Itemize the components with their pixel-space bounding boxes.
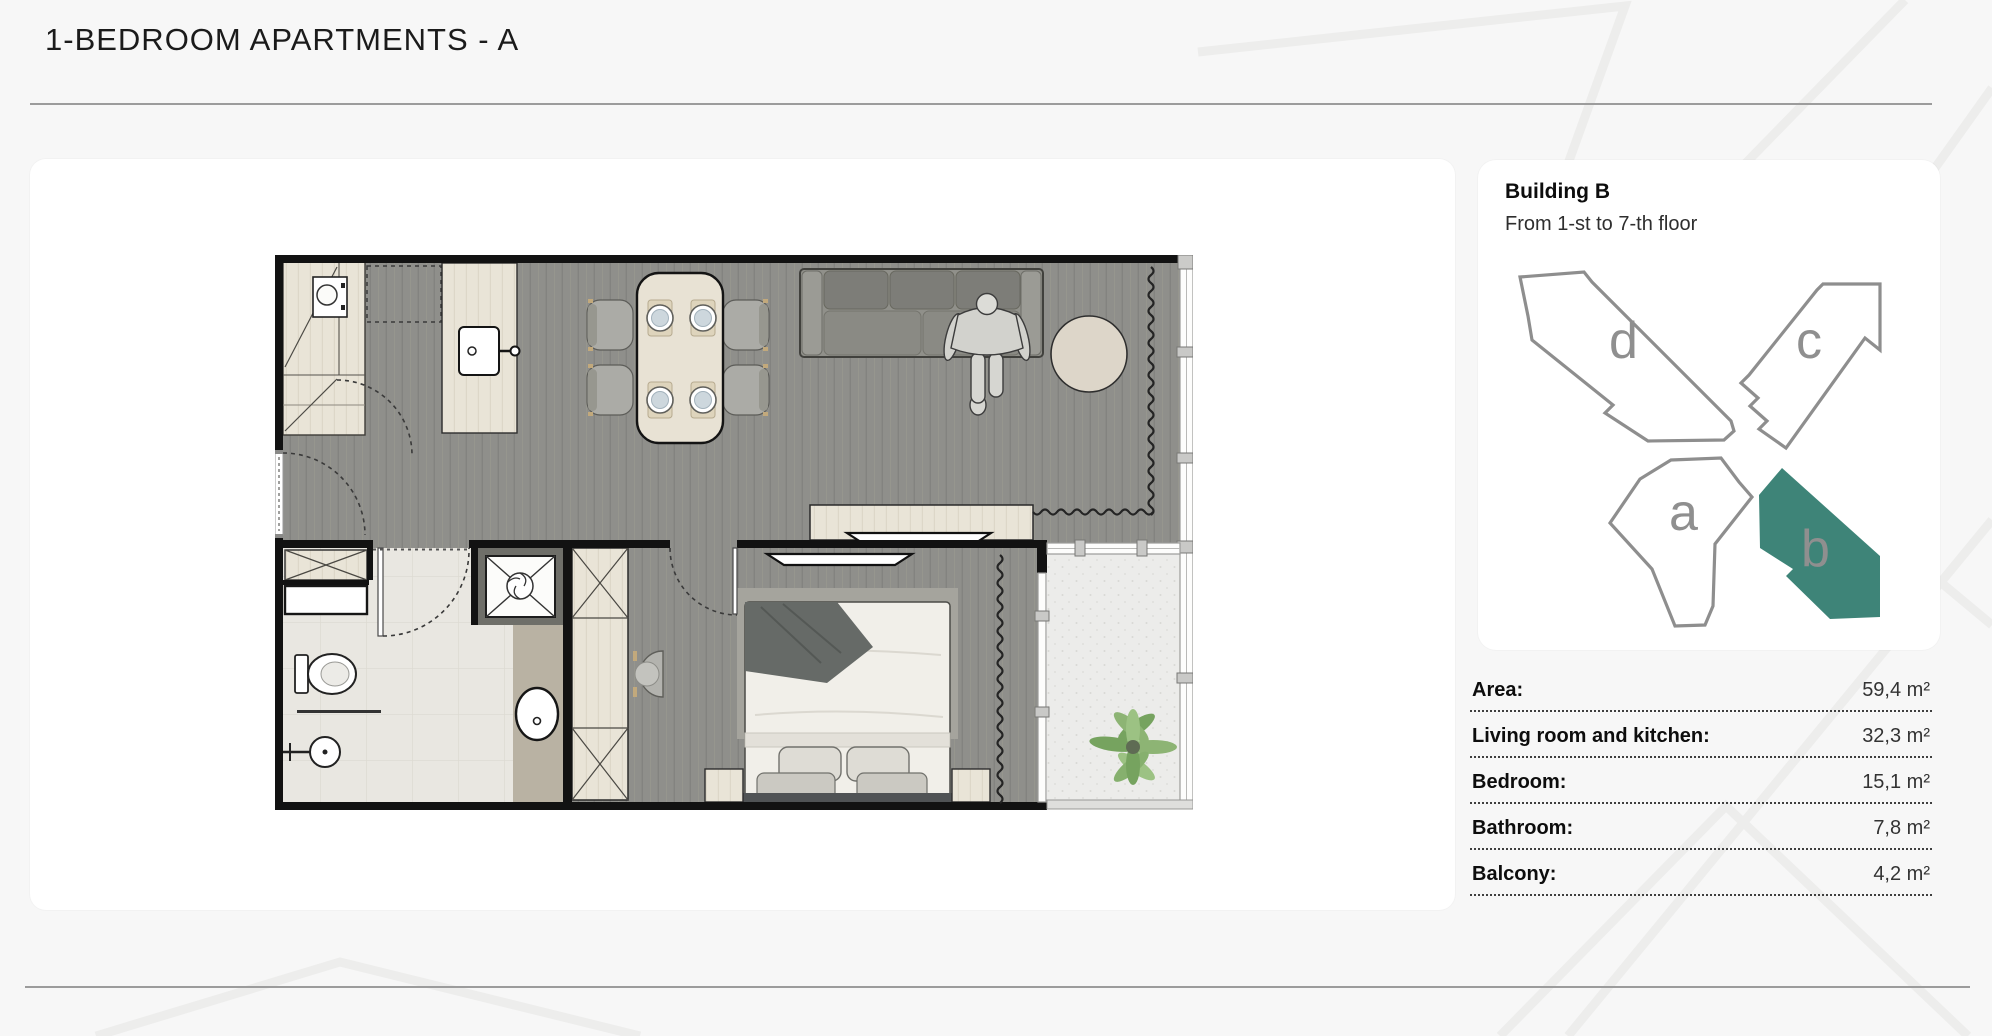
shower-partition xyxy=(297,710,381,713)
building-diagram: d c a b xyxy=(1509,258,1909,638)
building-section-c[interactable]: c xyxy=(1741,284,1880,448)
building-floor-range: From 1-st to 7-th floor xyxy=(1505,213,1697,236)
detail-value: 15,1 m² xyxy=(1862,771,1930,794)
place-setting xyxy=(647,300,673,336)
round-rug xyxy=(1051,316,1127,392)
wardrobe xyxy=(572,548,628,800)
detail-value: 4,2 m² xyxy=(1873,863,1930,886)
nightstand-left xyxy=(705,769,743,802)
tv-console xyxy=(810,505,1033,544)
detail-row: Area: 59,4 m² xyxy=(1470,666,1932,712)
detail-label: Bedroom: xyxy=(1472,771,1566,794)
detail-row: Bathroom: 7,8 m² xyxy=(1470,804,1932,850)
kitchen-cabinets xyxy=(283,262,365,435)
detail-label: Bathroom: xyxy=(1472,817,1573,840)
detail-value: 7,8 m² xyxy=(1873,817,1930,840)
kitchen-island xyxy=(442,263,520,433)
bathroom-door-leaf xyxy=(378,548,383,636)
bed-base xyxy=(741,793,954,802)
building-section-label: c xyxy=(1796,312,1822,370)
building-section-label: b xyxy=(1801,520,1830,578)
detail-label: Living room and kitchen: xyxy=(1472,725,1710,748)
page-title: 1-BEDROOM APARTMENTS - A xyxy=(45,22,519,58)
detail-value: 32,3 m² xyxy=(1862,725,1930,748)
building-name: Building B xyxy=(1505,180,1610,204)
floor-plan-card xyxy=(30,159,1455,910)
bottom-divider xyxy=(25,986,1970,988)
building-card: Building B From 1-st to 7-th floor d c a xyxy=(1478,160,1940,650)
detail-row: Balcony: 4,2 m² xyxy=(1470,850,1932,896)
washbasin xyxy=(516,688,558,740)
detail-label: Area: xyxy=(1472,679,1523,702)
tv-bedroom xyxy=(767,554,912,565)
bed-area xyxy=(705,588,990,802)
toilet xyxy=(295,654,356,694)
nightstand-right xyxy=(952,769,990,802)
detail-value: 59,4 m² xyxy=(1862,679,1930,702)
building-section-label: d xyxy=(1609,312,1638,370)
dining-chair xyxy=(723,364,769,416)
top-divider xyxy=(30,103,1932,105)
building-section-a[interactable]: a xyxy=(1610,458,1752,626)
bathroom-shelf xyxy=(285,586,367,614)
page: 1-BEDROOM APARTMENTS - A xyxy=(0,0,1992,1036)
entry-door xyxy=(275,450,283,538)
shower-cabin xyxy=(478,548,563,625)
detail-row: Bedroom: 15,1 m² xyxy=(1470,758,1932,804)
building-section-b[interactable]: b xyxy=(1759,468,1880,619)
building-section-label: a xyxy=(1669,484,1698,542)
detail-row: Living room and kitchen: 32,3 m² xyxy=(1470,712,1932,758)
place-setting xyxy=(690,382,716,418)
dining-chair xyxy=(587,364,633,416)
bedroom-door-leaf xyxy=(733,548,737,614)
place-setting xyxy=(690,300,716,336)
cooktop xyxy=(313,277,347,317)
washing-machine xyxy=(285,550,367,580)
apartment-details-list: Area: 59,4 m² Living room and kitchen: 3… xyxy=(1470,666,1932,896)
dining-chair xyxy=(587,299,633,351)
floor-plan xyxy=(275,255,1193,810)
building-section-d[interactable]: d xyxy=(1520,272,1734,441)
detail-label: Balcony: xyxy=(1472,863,1556,886)
dining-chair xyxy=(723,299,769,351)
balcony-floor xyxy=(1047,552,1180,802)
place-setting xyxy=(647,382,673,418)
